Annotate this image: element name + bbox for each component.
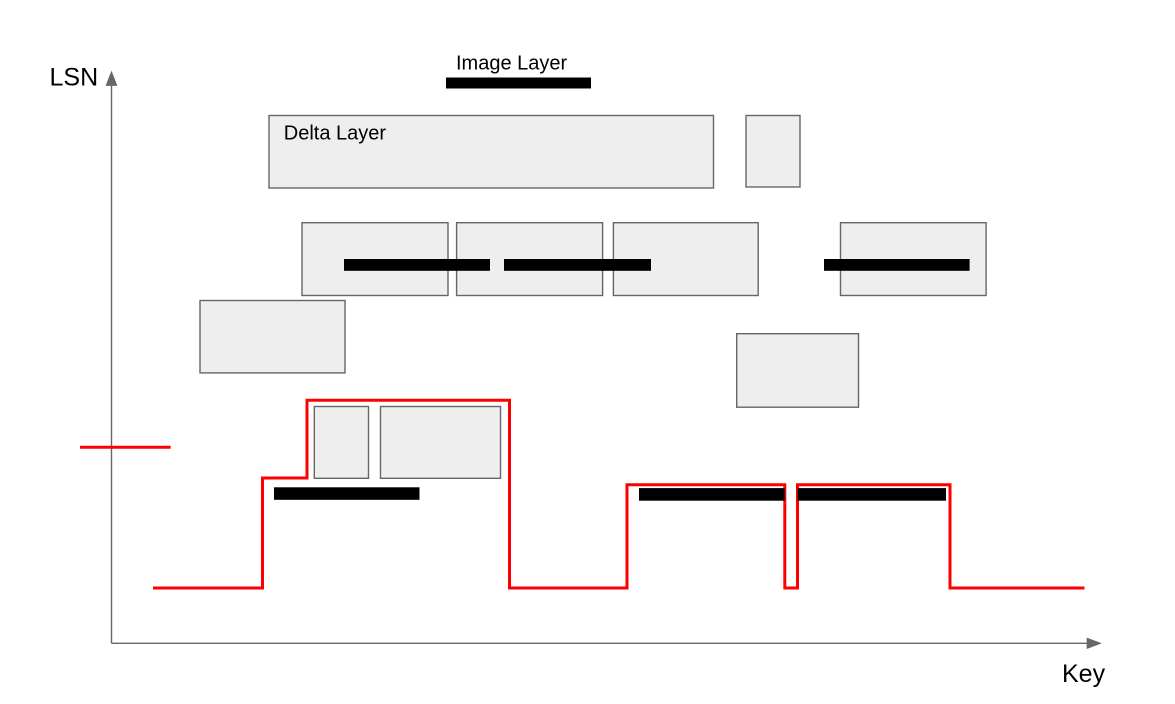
svg-text:Key: Key [1062,660,1106,688]
svg-text:LSN: LSN [50,64,99,92]
svg-text:Delta Layer: Delta Layer [284,122,387,144]
svg-text:Image Layer: Image Layer [456,53,568,75]
